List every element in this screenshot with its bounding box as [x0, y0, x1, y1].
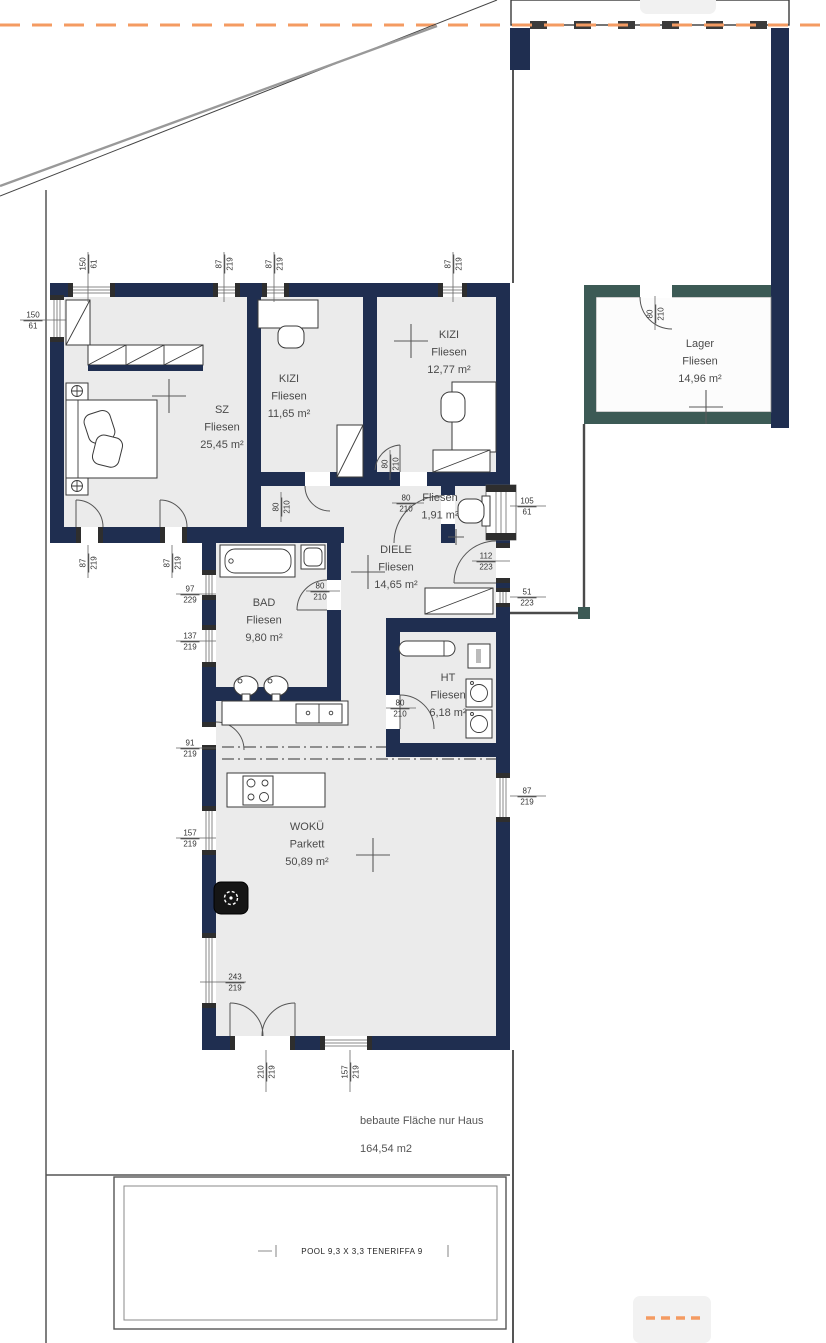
svg-text:219: 219 — [183, 750, 197, 759]
pool-label: POOL 9,3 X 3,3 TENERIFFA 9 — [301, 1247, 423, 1256]
svg-text:157: 157 — [341, 1065, 350, 1079]
dimension-label: 15061 — [24, 311, 43, 331]
svg-text:210: 210 — [392, 457, 401, 471]
site-diagonal-thin — [0, 0, 497, 196]
svg-text:105: 105 — [520, 497, 534, 506]
dimension-label: 243219 — [226, 973, 245, 993]
ht-south-wall — [386, 743, 510, 757]
dimension-label: 15061 — [79, 255, 99, 274]
svg-text:210: 210 — [313, 593, 327, 602]
window-woku-243 — [202, 933, 216, 1008]
lager-bottom-wall — [584, 412, 771, 424]
dimension-label: 87219 — [215, 255, 235, 274]
desk-kizi1 — [258, 300, 318, 328]
built-area-label: bebaute Fläche nur Haus — [360, 1115, 484, 1127]
svg-text:87: 87 — [523, 787, 532, 796]
svg-text:210: 210 — [257, 1065, 266, 1079]
window-sz-north — [213, 283, 240, 297]
wardrobe-sz — [88, 345, 203, 371]
svg-text:219: 219 — [226, 257, 235, 271]
svg-text:87: 87 — [265, 259, 274, 268]
site-diagonal-gray — [0, 26, 437, 186]
svg-text:87: 87 — [79, 558, 88, 567]
window-kizi2-north — [438, 283, 467, 297]
nightstand-2 — [66, 478, 88, 495]
dimension-label: 87219 — [265, 255, 285, 274]
svg-text:219: 219 — [183, 840, 197, 849]
bad-east-wall — [327, 543, 341, 701]
dimension-label: 51223 — [518, 588, 537, 608]
toilet — [458, 496, 490, 526]
svg-text:219: 219 — [228, 984, 242, 993]
fence-post — [578, 607, 590, 619]
svg-text:219: 219 — [268, 1065, 277, 1079]
lager-left-wall — [584, 285, 596, 424]
svg-text:157: 157 — [183, 829, 197, 838]
window-woku-157 — [202, 806, 216, 855]
window-bad-137 — [202, 625, 216, 667]
divider-kizi1-kizi2 — [363, 297, 377, 480]
svg-text:243: 243 — [228, 973, 242, 982]
dimension-label: 210219 — [257, 1063, 277, 1082]
svg-text:80: 80 — [402, 494, 411, 503]
chair-kizi2 — [441, 392, 465, 422]
hob-counter — [227, 773, 325, 807]
corner-window-west — [50, 295, 64, 342]
washbasin-top — [301, 545, 325, 569]
kitchen-counter — [222, 701, 348, 725]
svg-text:112: 112 — [480, 552, 493, 561]
svg-text:219: 219 — [174, 556, 183, 570]
svg-text:61: 61 — [90, 259, 99, 268]
ht-north-wall — [386, 618, 510, 632]
bathtub — [220, 545, 295, 577]
dimension-label: 91219 — [181, 739, 200, 759]
svg-text:87: 87 — [215, 259, 224, 268]
dimension-label: 157219 — [341, 1063, 361, 1082]
dimension-label: 87219 — [444, 255, 464, 274]
svg-text:210: 210 — [399, 505, 413, 514]
annex-right-wall — [771, 28, 789, 428]
svg-text:61: 61 — [523, 508, 532, 517]
svg-text:91: 91 — [186, 739, 195, 748]
window-woku-east — [496, 773, 510, 822]
lager-door-opening — [640, 284, 672, 298]
dimension-label: 87219 — [79, 554, 99, 573]
svg-text:51: 51 — [523, 588, 532, 597]
room-label: WOKÜParkett50,89 m² — [285, 821, 329, 868]
svg-text:219: 219 — [90, 556, 99, 570]
dimension-label: 157219 — [181, 829, 200, 849]
lager-floor — [596, 297, 771, 412]
svg-text:219: 219 — [183, 643, 197, 652]
svg-text:80: 80 — [381, 459, 390, 468]
room-label: DIELEFliesen14,65 m² — [374, 544, 418, 591]
window-bad-97 — [202, 570, 216, 600]
ht-west-wall — [386, 618, 400, 756]
dimension-label: 137219 — [181, 632, 200, 652]
window-kizi1-north — [262, 283, 289, 297]
ht-appliance — [468, 644, 490, 668]
bed — [66, 400, 157, 478]
svg-text:229: 229 — [183, 596, 197, 605]
annex-left-stub-wall — [510, 28, 530, 70]
svg-text:223: 223 — [479, 563, 493, 572]
svg-text:80: 80 — [272, 502, 281, 511]
floor-plan-svg: SZFliesen25,45 m²KIZIFliesen11,65 m²KIZI… — [0, 0, 826, 1343]
svg-text:80: 80 — [646, 309, 655, 318]
floor-plan-page: SZFliesen25,45 m²KIZIFliesen11,65 m²KIZI… — [0, 0, 826, 1343]
svg-text:219: 219 — [520, 798, 534, 807]
svg-text:223: 223 — [520, 599, 534, 608]
dimension-label: 87219 — [163, 554, 183, 573]
svg-text:210: 210 — [393, 710, 407, 719]
svg-text:219: 219 — [276, 257, 285, 271]
svg-text:219: 219 — [352, 1065, 361, 1079]
svg-text:80: 80 — [316, 582, 325, 591]
window-woku-south — [320, 1036, 372, 1050]
svg-text:210: 210 — [657, 307, 666, 321]
divider-sz-kizi1 — [247, 297, 261, 527]
window-51 — [496, 588, 510, 607]
dimension-label: 97229 — [181, 585, 200, 605]
neighbor-tab — [640, 0, 716, 14]
washing-machine-2 — [466, 710, 492, 738]
built-area-value: 164,54 m2 — [360, 1143, 412, 1155]
svg-text:137: 137 — [183, 632, 197, 641]
lager-annex — [510, 28, 789, 428]
kizi-south-walls — [247, 472, 510, 486]
lager-top-wall — [584, 285, 771, 297]
boiler — [399, 641, 455, 656]
svg-text:80: 80 — [396, 699, 405, 708]
svg-text:97: 97 — [186, 585, 195, 594]
svg-text:219: 219 — [455, 257, 464, 271]
chair-kizi1 — [278, 326, 304, 348]
svg-text:87: 87 — [163, 558, 172, 567]
svg-text:87: 87 — [444, 259, 453, 268]
svg-text:150: 150 — [79, 257, 88, 271]
svg-text:150: 150 — [26, 311, 40, 320]
wood-stove — [214, 882, 248, 914]
svg-text:210: 210 — [283, 500, 292, 514]
svg-text:61: 61 — [29, 322, 38, 331]
dimension-label: 10561 — [518, 497, 537, 517]
east-wall — [496, 283, 510, 1050]
corner-window-north — [68, 283, 115, 297]
dimension-label: 87219 — [518, 787, 537, 807]
nightstand-1 — [66, 383, 88, 400]
washing-machine-1 — [466, 679, 492, 707]
